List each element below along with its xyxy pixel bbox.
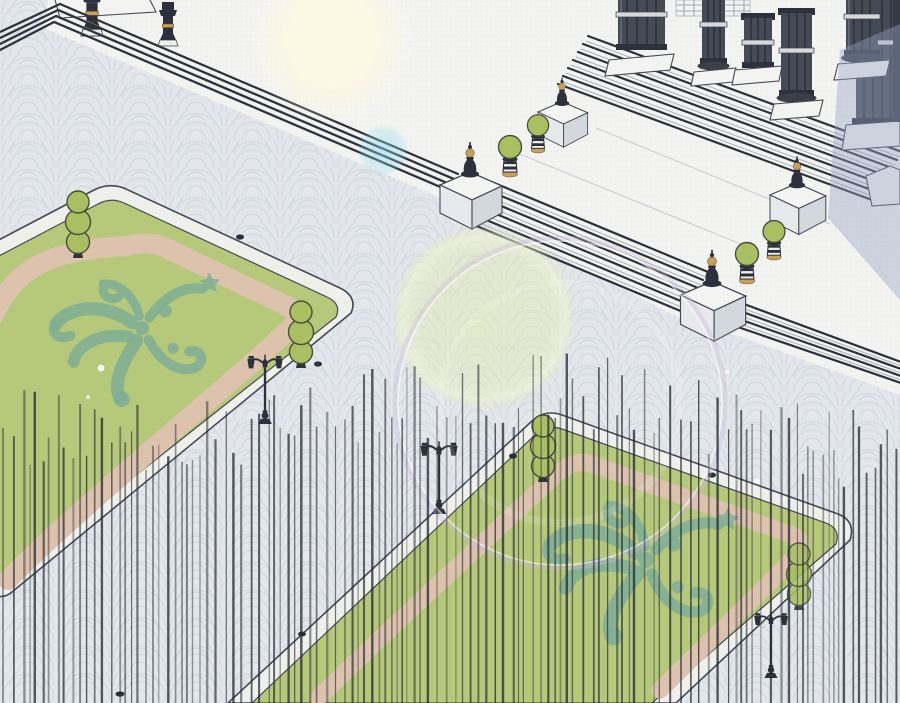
white-speck xyxy=(86,395,90,399)
sparkle xyxy=(725,370,729,374)
topiary-left-right-corner xyxy=(289,301,314,368)
courtyard-illustration: Palace courtyard plaza — isometric illus… xyxy=(0,0,900,703)
curb-fixture xyxy=(236,234,244,239)
sparkle xyxy=(754,478,760,484)
topiary-left-top-corner xyxy=(66,191,91,258)
curb-fixture xyxy=(314,361,322,366)
flare-cyan-disc xyxy=(357,124,409,176)
topiary-right-top-corner xyxy=(531,415,556,482)
white-speck xyxy=(98,365,105,372)
